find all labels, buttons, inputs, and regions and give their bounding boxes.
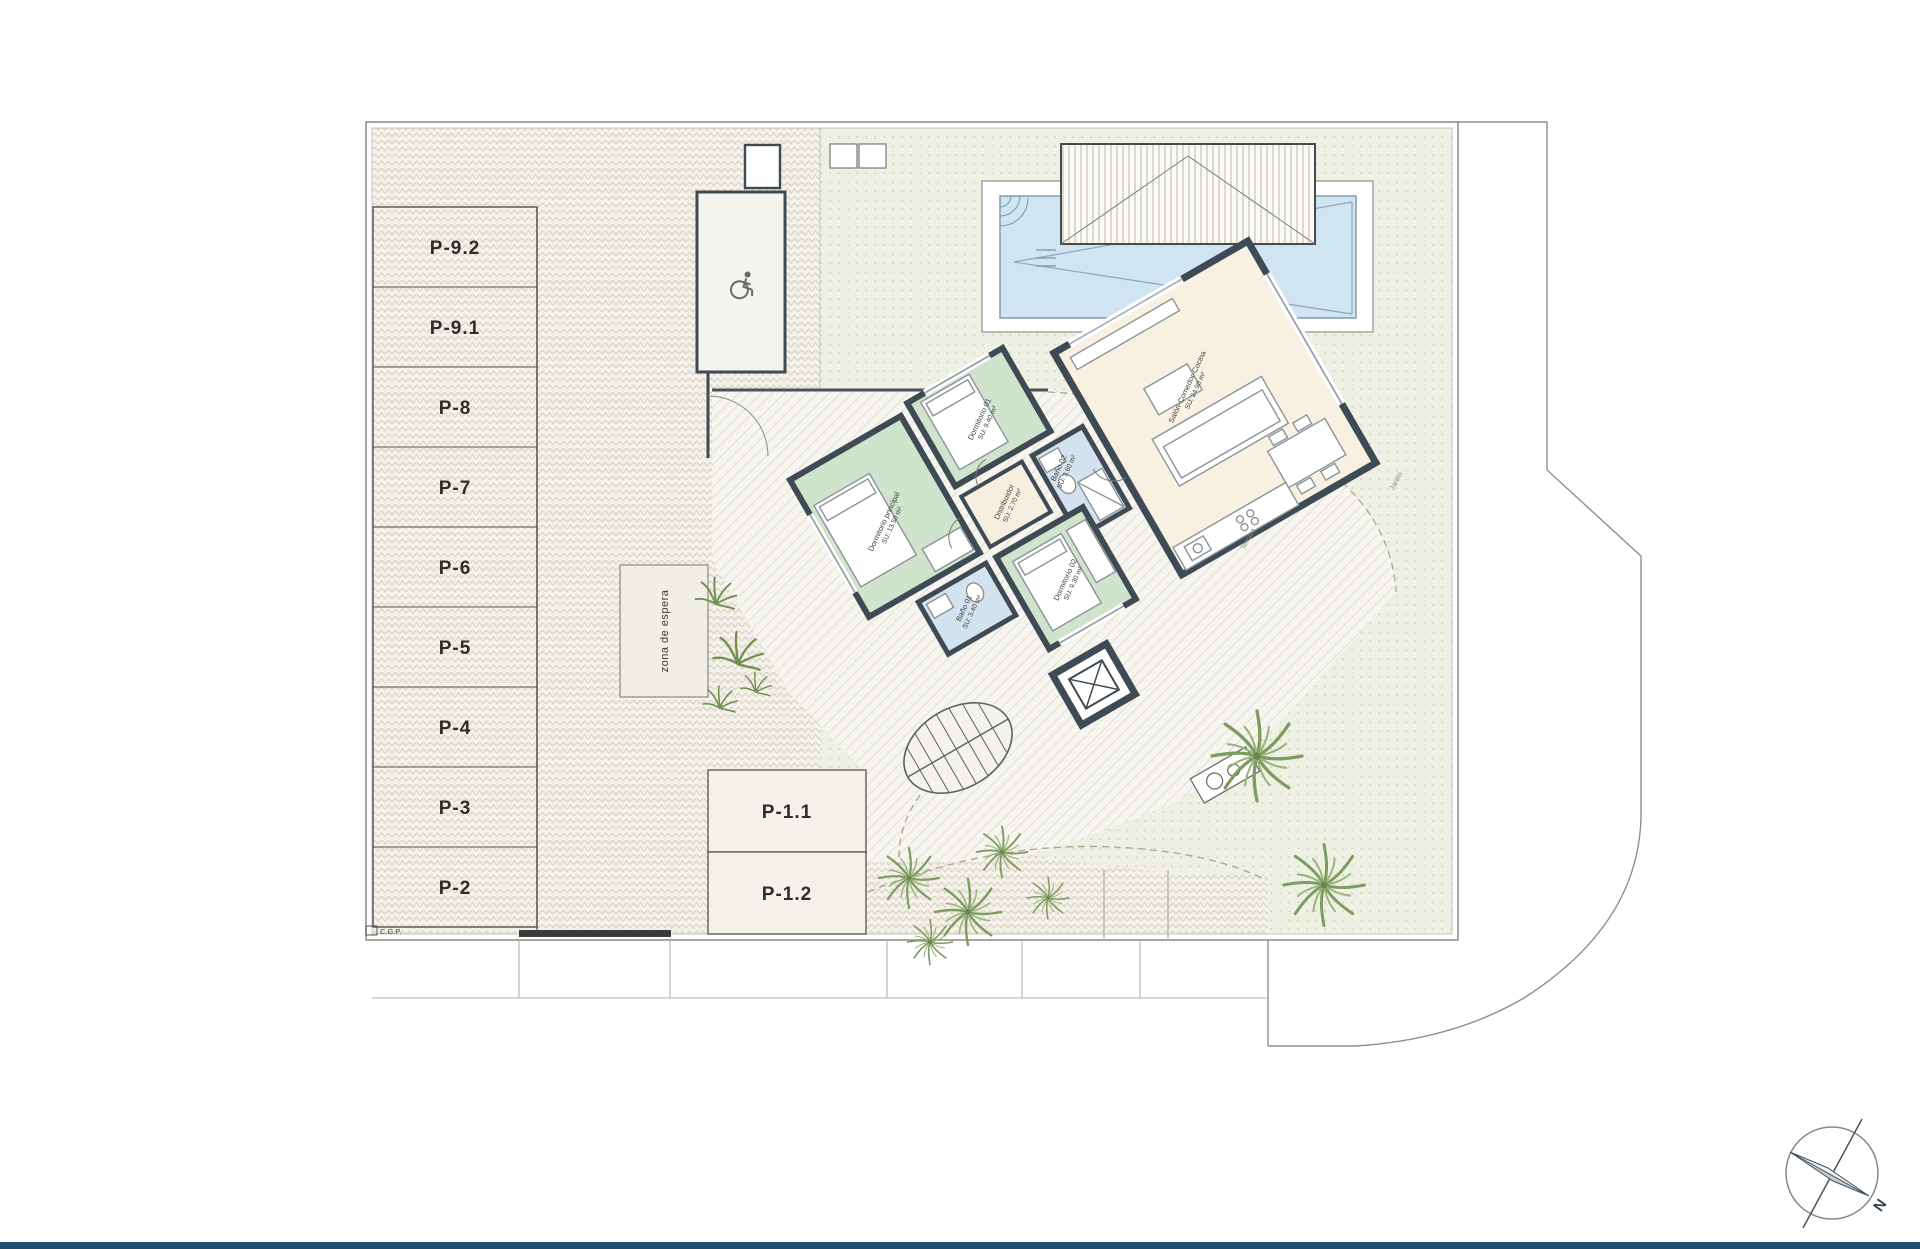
cgp-label: C.G.P.	[380, 927, 402, 936]
sidewalk-joints	[372, 940, 1268, 998]
meter-box	[745, 145, 780, 188]
utility-box	[859, 144, 886, 168]
stall-label: P-9.1	[430, 318, 480, 339]
stall-label: P-2	[439, 878, 472, 899]
stall-label: P-7	[439, 478, 472, 499]
compass-needle-light	[1790, 1152, 1869, 1196]
stall-label: P-3	[439, 798, 472, 819]
compass-rose: N	[1786, 1119, 1890, 1228]
waiting-zone: zona de espera	[620, 565, 708, 697]
stall-label: P-9.2	[430, 238, 480, 259]
site-plan-page: P-9.2 P-9.1 P-8 P-7 P-6 P-5 P-4 P-3 P-2 …	[0, 0, 1920, 1249]
stall-label: P-1.2	[762, 884, 812, 905]
waiting-zone-label: zona de espera	[659, 589, 671, 672]
stall-label: P-1.1	[762, 802, 812, 823]
stall-label: P-6	[439, 558, 472, 579]
footer-accent-bar	[0, 1242, 1920, 1249]
pergola	[1061, 144, 1315, 244]
site-plan-drawing: P-9.2 P-9.1 P-8 P-7 P-6 P-5 P-4 P-3 P-2 …	[0, 0, 1920, 1249]
stall-label: P-5	[439, 638, 472, 659]
entrance-gate	[519, 930, 671, 937]
north-label: N	[1870, 1196, 1890, 1215]
stall-label: P-4	[439, 718, 472, 739]
stall-label: P-8	[439, 398, 472, 419]
utility-box	[830, 144, 857, 168]
